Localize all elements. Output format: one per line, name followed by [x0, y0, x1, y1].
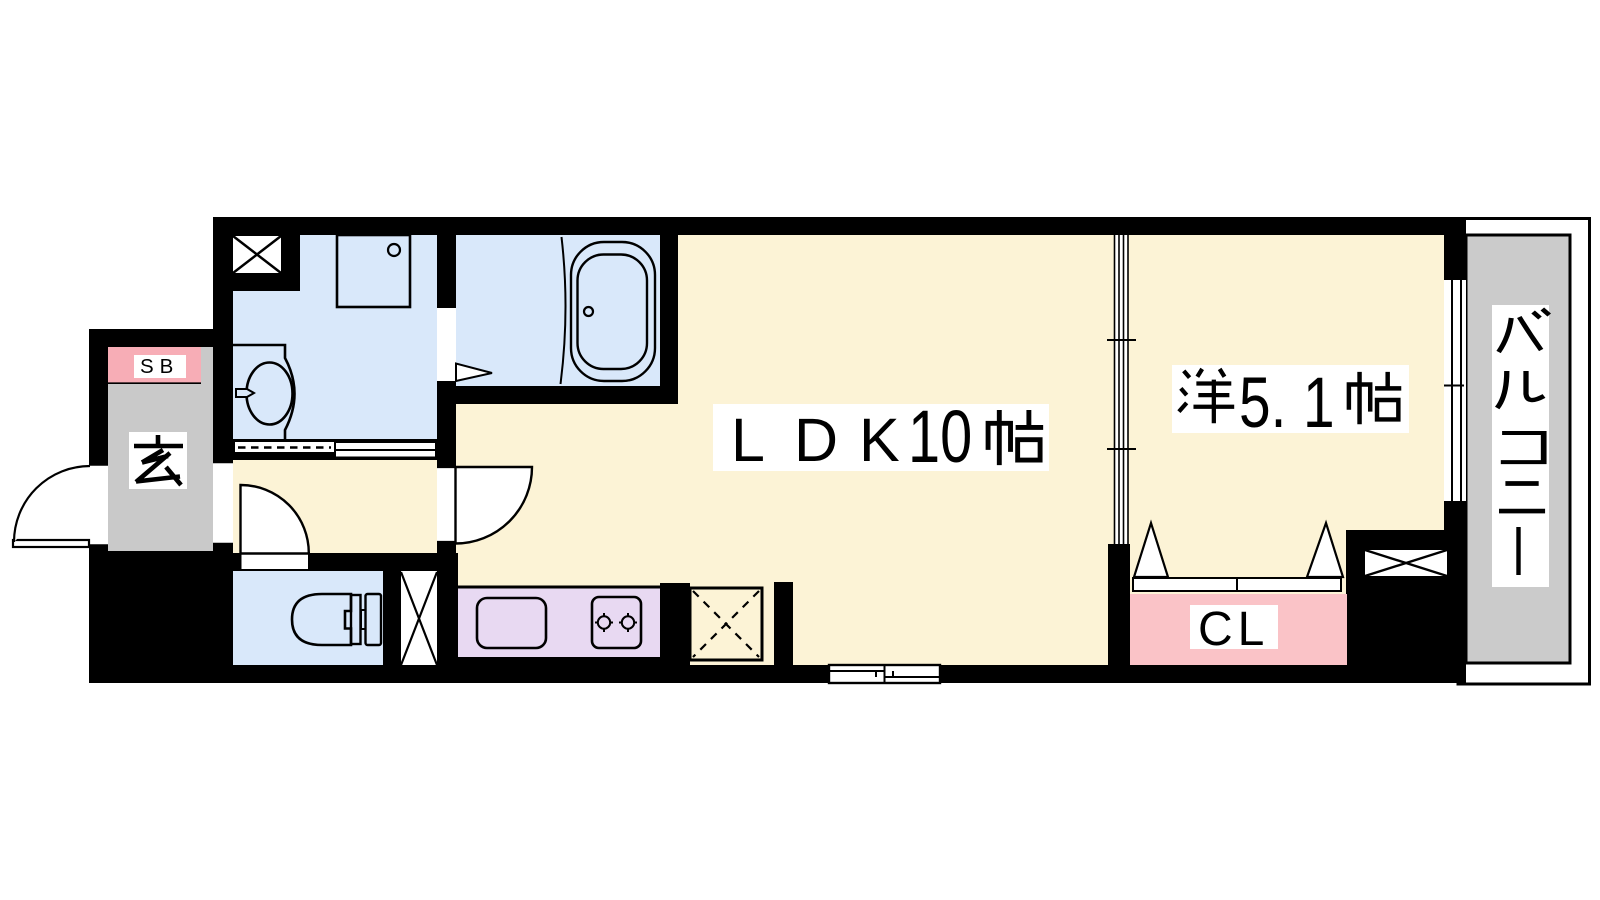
svg-text:CL: CL — [1198, 603, 1269, 656]
svg-text:10: 10 — [908, 396, 972, 479]
svg-text:5.: 5. — [1239, 363, 1286, 443]
svg-text:SB: SB — [140, 355, 179, 378]
svg-text:K: K — [859, 406, 900, 474]
svg-text:D: D — [794, 406, 838, 474]
svg-text:1: 1 — [1303, 363, 1335, 443]
svg-text:L: L — [731, 406, 765, 474]
